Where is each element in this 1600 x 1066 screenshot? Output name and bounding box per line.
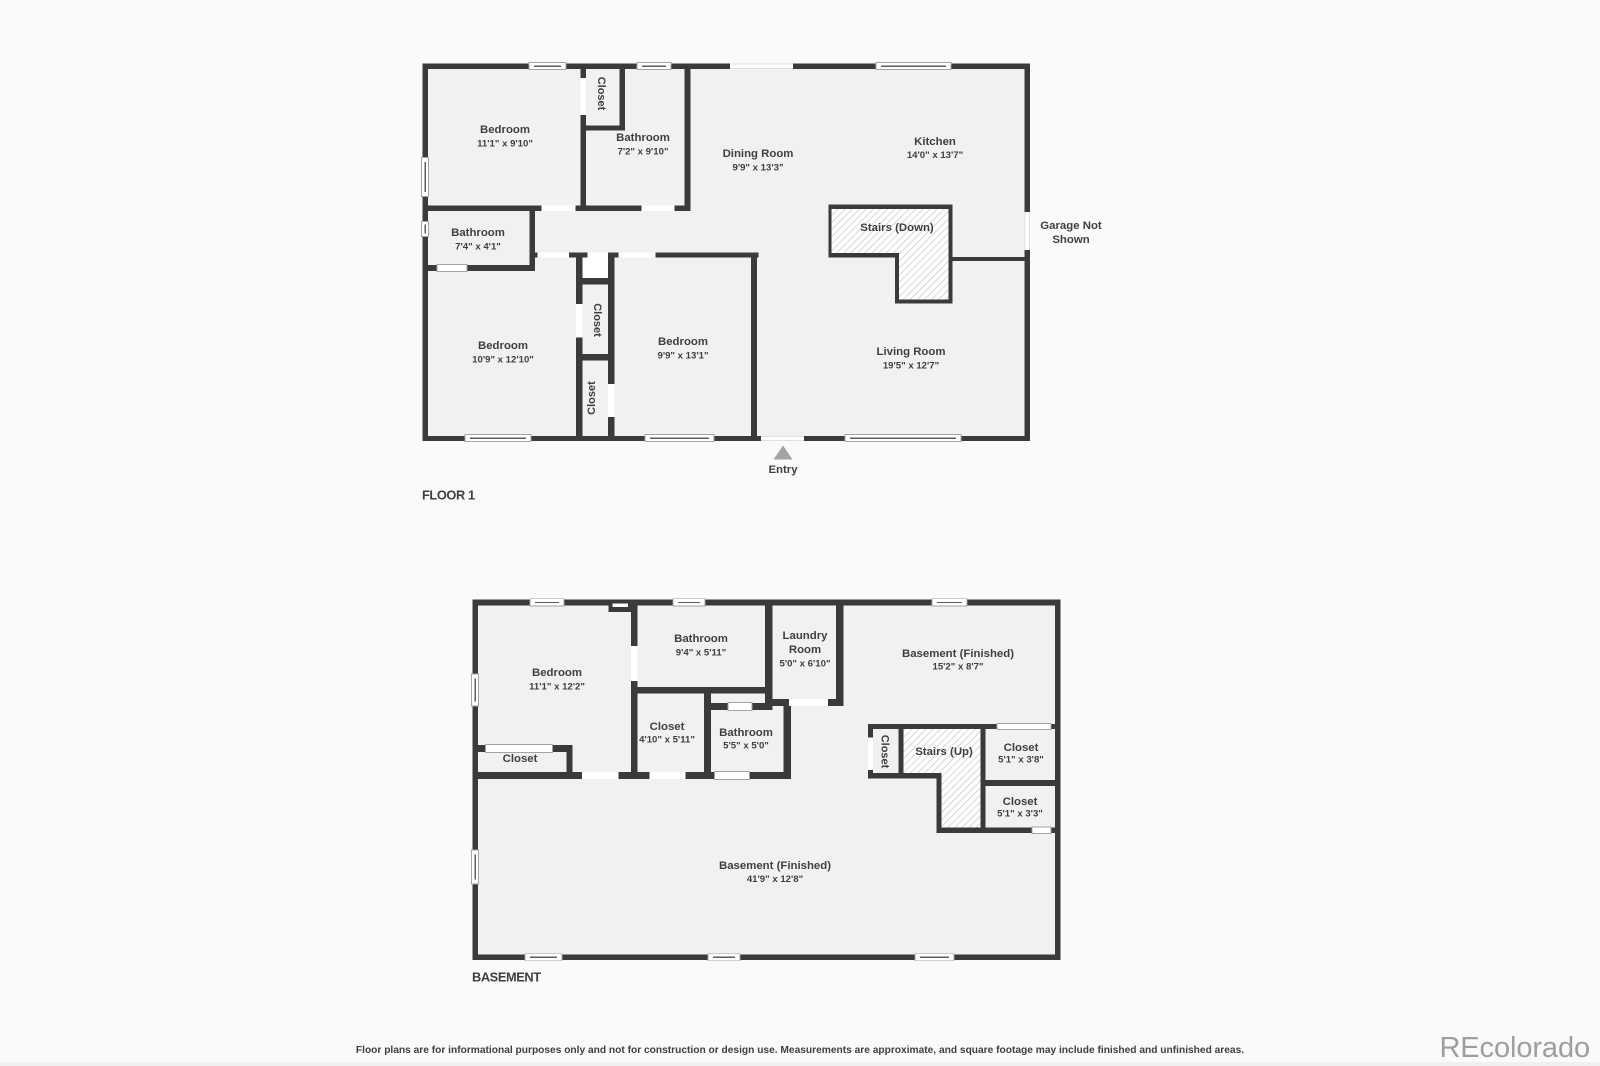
svg-text:15'2" x 8'7": 15'2" x 8'7" (932, 662, 983, 673)
svg-text:Bedroom: Bedroom (658, 336, 708, 348)
svg-text:Stairs (Down): Stairs (Down) (860, 222, 934, 234)
svg-text:7'4" x 4'1": 7'4" x 4'1" (455, 242, 501, 253)
svg-text:Basement (Finished): Basement (Finished) (719, 860, 831, 872)
svg-text:Entry: Entry (768, 464, 798, 476)
svg-text:5'0" x 6'10": 5'0" x 6'10" (779, 659, 830, 670)
svg-text:Floor plans are for informatio: Floor plans are for informational purpos… (356, 1045, 1244, 1056)
svg-text:11'1" x 12'2": 11'1" x 12'2" (529, 682, 585, 693)
svg-text:Room: Room (789, 644, 821, 656)
svg-text:Garage Not: Garage Not (1040, 220, 1102, 232)
svg-text:Bedroom: Bedroom (478, 340, 528, 352)
svg-text:9'4" x 5'11": 9'4" x 5'11" (676, 648, 726, 659)
svg-text:5'1" x 3'8": 5'1" x 3'8" (998, 755, 1044, 766)
svg-text:41'9" x 12'8": 41'9" x 12'8" (747, 874, 803, 885)
svg-text:Closet: Closet (591, 303, 603, 337)
svg-text:Stairs (Up): Stairs (Up) (915, 746, 973, 758)
svg-text:REcolorado: REcolorado (1439, 1032, 1590, 1064)
svg-text:Basement (Finished): Basement (Finished) (902, 648, 1014, 660)
svg-text:Bedroom: Bedroom (480, 124, 530, 136)
svg-text:Closet: Closet (1003, 796, 1038, 808)
svg-text:Bedroom: Bedroom (532, 667, 582, 679)
svg-text:Bathroom: Bathroom (674, 633, 728, 645)
svg-text:FLOOR 1: FLOOR 1 (422, 488, 475, 503)
svg-text:Closet: Closet (595, 77, 607, 111)
svg-text:Shown: Shown (1052, 234, 1089, 246)
svg-text:Bathroom: Bathroom (451, 227, 505, 239)
svg-text:5'1" x 3'3": 5'1" x 3'3" (997, 809, 1043, 820)
svg-text:19'5" x 12'7": 19'5" x 12'7" (883, 361, 939, 372)
svg-text:4'10" x 5'11": 4'10" x 5'11" (639, 735, 695, 746)
svg-text:Bathroom: Bathroom (719, 727, 773, 739)
svg-text:Kitchen: Kitchen (914, 136, 956, 148)
svg-text:Closet: Closet (503, 753, 538, 765)
svg-text:9'9" x 13'3": 9'9" x 13'3" (732, 163, 783, 174)
svg-text:9'9" x 13'1": 9'9" x 13'1" (657, 351, 708, 362)
svg-text:5'5" x 5'0": 5'5" x 5'0" (723, 741, 769, 752)
svg-text:10'9" x 12'10": 10'9" x 12'10" (472, 355, 534, 366)
svg-text:Living Room: Living Room (877, 346, 946, 358)
svg-text:Laundry: Laundry (783, 630, 829, 642)
svg-text:Closet: Closet (586, 381, 598, 415)
svg-text:Closet: Closet (879, 735, 891, 769)
svg-text:BASEMENT: BASEMENT (472, 970, 541, 985)
svg-text:14'0" x 13'7": 14'0" x 13'7" (907, 150, 963, 161)
svg-text:Bathroom: Bathroom (616, 132, 670, 144)
svg-text:Closet: Closet (1004, 742, 1039, 754)
svg-text:7'2" x 9'10": 7'2" x 9'10" (617, 147, 668, 158)
svg-text:11'1" x 9'10": 11'1" x 9'10" (477, 139, 533, 150)
svg-text:Dining Room: Dining Room (723, 148, 794, 160)
svg-text:Closet: Closet (650, 721, 685, 733)
